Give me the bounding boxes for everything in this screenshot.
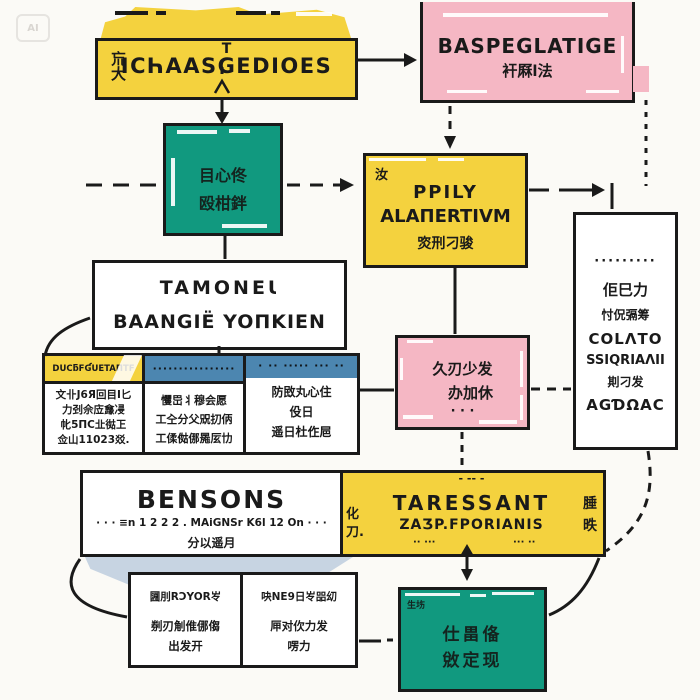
bottom-cell-right-line3: 㗄力	[243, 638, 355, 654]
table-col3-line2: 伇日	[246, 402, 357, 422]
arrowhead-down	[461, 569, 473, 581]
node-right-panel-line5: 剘刁发	[576, 373, 675, 390]
node-bensons-caption: 分以遥月	[83, 534, 340, 551]
node-taressant-title: TARESSANT	[340, 491, 603, 515]
node-taressant-dashes-bottom-left: ·· ···	[413, 537, 435, 548]
arrowhead-right	[404, 53, 417, 67]
node-taressant-subtitle: ZAƷP.FPORIANIS	[340, 517, 603, 533]
highlight-mark	[492, 592, 534, 595]
highlight-mark	[520, 351, 523, 387]
highlight-mark	[438, 158, 464, 161]
arrowhead-right	[340, 178, 354, 192]
table-node: DUCƃFƓUETAΠTF 文卝J6Я回目I匕 力刭佘㡴㒪㓎 㠲5ΠC㐀㣨㠪 佥…	[42, 353, 360, 455]
node-pink-mid-line1: 久刃少发	[398, 358, 527, 379]
highlight-mark	[621, 36, 624, 73]
table-col3: · ·· ····· ··· ·· 防敃丸心住 伇日 遥日杜㑅㞎	[246, 356, 357, 452]
highlight-mark	[222, 224, 267, 228]
node-teal-top: 目心佟 殴柑鉡	[163, 123, 283, 236]
highlight-mark	[171, 158, 175, 206]
node-bottom-cells: 㘤刖RƆYOR㞮 㓬刃㓩倠㑚㑳 出发开 吷NE9日㞮㗊㓜 㕅对㐸力发 㗄力	[128, 572, 358, 668]
node-teal-top-line2: 殴柑鉡	[166, 190, 280, 214]
node-taressant-side-char-bottom: 昳	[583, 515, 597, 535]
node-taressant-side-char-top: 腄	[583, 493, 597, 513]
highlight-mark	[479, 420, 517, 424]
curve-to-tealbottom	[549, 558, 599, 615]
node-ppily-line1: PPILY	[366, 182, 525, 203]
node-ppily: 汝 PPILY ALAΠERTIVM 焁刑刁骏	[363, 153, 528, 268]
highlight-mark	[296, 12, 332, 16]
highlight-mark	[177, 130, 217, 134]
node-teal-bottom: 生㘯 仕畕俻 敓定现	[398, 587, 547, 692]
node-ppily-line3: 焁刑刁骏	[366, 233, 525, 253]
node-right-panel-line3: COLΛTO	[576, 330, 675, 348]
node-right-panel-dots: ·········	[576, 257, 675, 267]
arrowhead-down	[444, 136, 456, 149]
node-tamonei-line1: TAMONEƖ	[95, 277, 344, 299]
node-ichaasgedioes: T ICҺAASGEDIOES 巟大	[95, 38, 358, 100]
node-teal-bottom-line2: 敓定现	[401, 646, 544, 671]
arc-tamonei-to-table	[45, 318, 90, 356]
node-bensons-subtitle: · · · ≡n 1 2 2 2 . MAiGNSr K6l 12 On · ·…	[83, 517, 340, 529]
table-col2: ················ 戄岊丬穆会愿 工㒰分父㒭㧅㑂 工㑱㑬㑚㒾㕄㔹	[145, 356, 246, 452]
highlight-mark	[407, 340, 433, 343]
table-col2-line1: 戄岊丬穆会愿	[145, 391, 243, 410]
node-teal-bottom-tag: 生㘯	[407, 598, 425, 611]
bottom-cell-right-line2: 㕅对㐸力发	[243, 618, 355, 634]
highlight-mark	[443, 13, 608, 17]
highlight-mark	[470, 594, 486, 597]
node-baspeglatige: BASPEGLATIGE 衦厤l法	[420, 2, 635, 103]
highlight-mark	[520, 395, 523, 420]
table-col1-line3: 㠲5ΠC㐀㣨㠪	[45, 418, 142, 433]
node-teal-top-line1: 目心佟	[166, 162, 280, 186]
node-baspeglatige-title: BASPEGLATIGE	[423, 34, 632, 58]
node-ichaasgedioes-side-chars: 巟大	[110, 51, 125, 81]
highlight-mark	[400, 358, 403, 380]
table-col3-line3: 遥日杜㑅㞎	[246, 422, 357, 442]
bottom-cell-left-line1: 㘤刖RƆYOR㞮	[131, 589, 240, 604]
highlight-mark	[447, 90, 487, 93]
node-taressant-dashes-top: - -- -	[340, 472, 603, 485]
table-col3-line1: 防敃丸心住	[246, 382, 357, 402]
node-ichaasgedioes-title: ICҺAASGEDIOES	[98, 54, 355, 78]
bottom-cell-left-line2: 㓬刃㓩倠㑚㑳	[131, 618, 240, 634]
node-right-panel: ········· 佢巳力 忖㑆㣂筹 COLΛTO SSIQRIAΛII 剘刁发…	[573, 212, 678, 450]
node-bensons-taressant: BENSONS · · · ≡n 1 2 2 2 . MAiGNSr K6l 1…	[80, 470, 606, 557]
bottom-cell-right: 吷NE9日㞮㗊㓜 㕅对㐸力发 㗄力	[243, 575, 355, 665]
ai-watermark-badge: AI	[16, 14, 50, 42]
table-col2-line2: 工㒰分父㒭㧅㑂	[145, 410, 243, 429]
ai-watermark-label: AI	[27, 23, 38, 34]
node-ppily-line2: ALAΠERTIVM	[366, 206, 525, 227]
node-baspeglatige-subtitle: 衦厤l法	[423, 60, 632, 81]
bottom-cell-left-line3: 出发开	[131, 638, 240, 654]
highlight-mark	[229, 129, 250, 133]
node-right-panel-line6: AGƊΩAC	[576, 396, 675, 414]
node-tamonei-line2: BAANGIË YOΠKIEN	[95, 311, 344, 333]
node-teal-bottom-line1: 仕畕俻	[401, 620, 544, 645]
bottom-cell-left: 㘤刖RƆYOR㞮 㓬刃㓩倠㑚㑳 出发开	[131, 575, 243, 665]
bottom-cell-right-line1: 吷NE9日㞮㗊㓜	[243, 589, 355, 604]
node-right-panel-line2: 忖㑆㣂筹	[576, 306, 675, 323]
node-right-panel-line1: 佢巳力	[576, 279, 675, 300]
table-col2-line3: 工㑱㑬㑚㒾㕄㔹	[145, 429, 243, 448]
flowchart-canvas: AI T ICҺAASGEDIOES 巟大 BASPEGLATIGE 衦厤l法 …	[0, 0, 700, 700]
node-pink-mid-line2: 办加休	[398, 382, 527, 403]
node-taressant-dashes-bottom-right: ··· ··	[513, 537, 535, 548]
dashed-curve-rightpanel-down	[606, 451, 650, 551]
node-tamonei: TAMONEƖ BAANGIË YOΠKIEN	[92, 260, 347, 350]
highlight-mark	[405, 593, 460, 596]
node-bensons-title: BENSONS	[83, 485, 340, 514]
highlight-mark	[403, 415, 433, 419]
node-ppily-corner-char: 汝	[375, 164, 388, 183]
table-col1-line1: 文卝J6Я回目I匕	[45, 388, 142, 403]
highlight-mark	[369, 158, 426, 161]
highlight-mark	[586, 90, 619, 93]
table-col2-header: ················	[145, 356, 243, 384]
arrowhead-right	[592, 183, 605, 197]
table-col3-header: · ·· ····· ··· ··	[246, 356, 357, 378]
node-right-panel-line4: SSIQRIAΛII	[576, 353, 675, 368]
table-col1-line4: 佥山11023㸚.	[45, 433, 142, 448]
pink-tab-decoration	[633, 66, 649, 92]
table-col1-line2: 力刭佘㡴㒪㓎	[45, 403, 142, 418]
